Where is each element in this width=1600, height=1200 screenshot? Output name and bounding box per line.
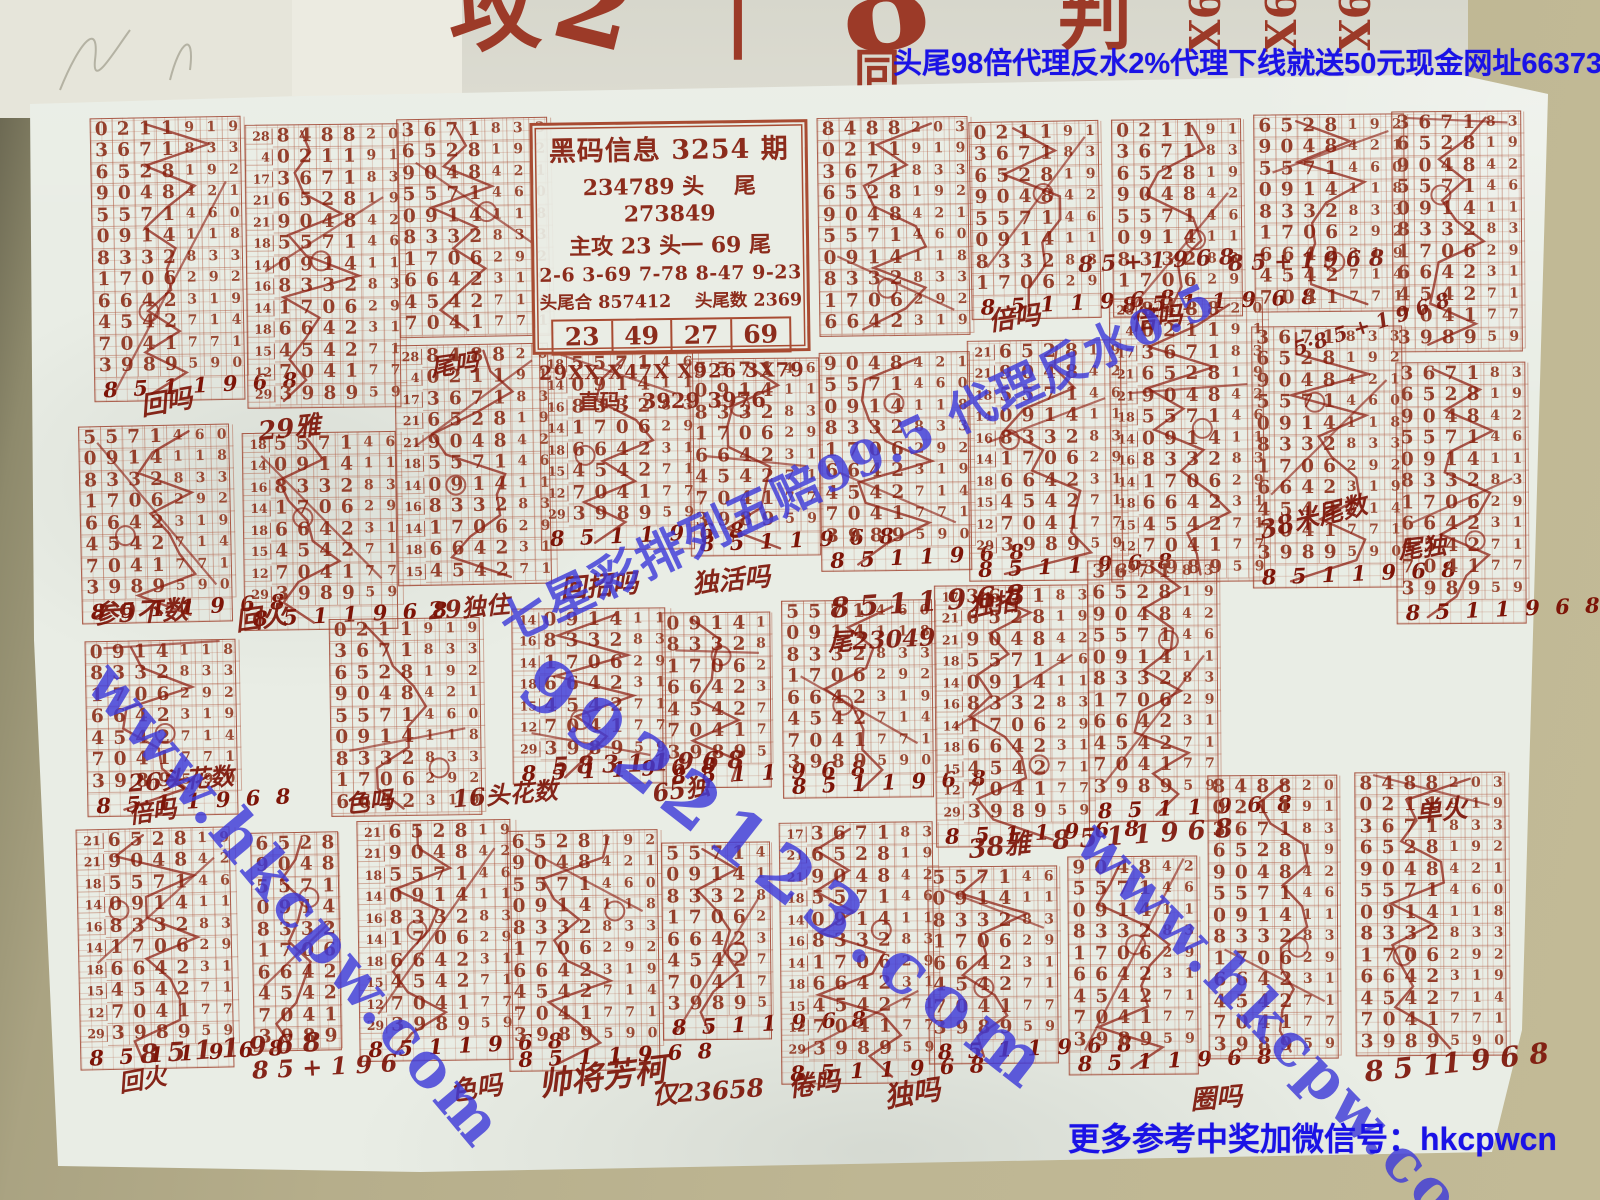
digit-cell: 3 [509, 225, 531, 248]
handwritten-note: 独招 [966, 582, 1021, 625]
digit-cell: 4 [568, 460, 590, 483]
digit-cell: 2 [397, 747, 419, 770]
digit-cell: 4 [1113, 1007, 1135, 1030]
draw-row: 5571460 [508, 873, 657, 896]
count-label: 4 [395, 370, 422, 386]
digit-cell: 8 [361, 167, 383, 190]
draw-row: 8332833 [331, 747, 480, 771]
digit-cell: 7 [510, 311, 532, 334]
digit-cell: 8 [273, 125, 295, 148]
draw-block: 3671833652819290484215571460091411883328… [396, 117, 551, 339]
handwritten-note: 色吗 [343, 780, 394, 820]
digit-cell: 0 [1276, 136, 1298, 159]
count-label: 14 [358, 889, 385, 905]
digit-cell: 7 [1356, 1009, 1378, 1032]
count-label: 15 [244, 544, 271, 560]
digit-cell: 1 [1039, 973, 1061, 996]
digit-cell: 5 [424, 452, 446, 475]
digit-cell: 5 [126, 872, 148, 895]
digit-cell: 4 [1113, 964, 1135, 987]
digit-cell: 4 [444, 291, 466, 314]
digit-cell: 9 [686, 993, 708, 1016]
digit-cell: 3 [1253, 926, 1275, 949]
digit-cell: 3 [91, 140, 113, 163]
digit-cell: 0 [407, 842, 429, 865]
digit-cell: 8 [419, 747, 441, 770]
count-label: 18 [781, 977, 808, 993]
digit-cell: 7 [363, 339, 385, 362]
digit-cell: 6 [508, 831, 530, 854]
info-cell: 49 [613, 320, 673, 353]
digit-cell: 7 [1039, 995, 1061, 1018]
promo-banner-top: 头尾98倍代理反水2%代理下线就送50元现金网址66373.com [893, 40, 1600, 82]
digit-cell: 1 [1480, 133, 1502, 156]
digit-cell: 9 [1039, 930, 1061, 953]
digit-cell: 3 [1488, 923, 1510, 946]
digit-cell: 1 [1458, 111, 1480, 134]
digit-cell: 1 [750, 612, 772, 635]
digit-cell: 9 [532, 1024, 554, 1047]
digit-cell: 2 [513, 515, 535, 538]
digit-cell: 3 [1318, 818, 1340, 841]
digit-cell: 1 [1035, 121, 1057, 144]
digit-cell: 3 [1091, 921, 1113, 944]
digit-cell: 1 [1253, 456, 1275, 479]
digit-cell: 8 [1320, 136, 1342, 159]
digit-cell: 0 [274, 254, 296, 277]
digit-cell: 6 [886, 289, 908, 312]
digit-cell: 9 [962, 629, 984, 652]
digit-cell: 1 [972, 273, 994, 296]
digit-cell: 7 [359, 561, 381, 584]
draw-row: 557146 [1397, 427, 1525, 449]
digit-cell: 6 [1029, 714, 1051, 737]
digit-cell: 2 [862, 182, 884, 205]
digit-cell: 4 [994, 888, 1016, 911]
digit-cell: 7 [685, 656, 707, 679]
digit-cell: 6 [1069, 964, 1091, 987]
digit-cell: 3 [1396, 363, 1418, 386]
digit-cell: 7 [1507, 556, 1529, 579]
digit-cell: 2 [374, 662, 396, 685]
digit-cell: 9 [684, 864, 706, 887]
digit-cell: 4 [1422, 901, 1444, 924]
draw-row: 14170629 [244, 496, 396, 520]
digit-cell: 9 [684, 613, 706, 636]
digit-cell: 2 [428, 820, 450, 843]
digit-cell: 0 [270, 454, 292, 477]
digit-cell: 8 [396, 661, 418, 684]
digit-cell: 7 [1227, 513, 1249, 536]
digit-cell: 3 [583, 630, 605, 653]
digit-cell: 4 [180, 181, 202, 204]
digit-cell: 0 [1419, 406, 1441, 429]
digit-cell: 9 [101, 448, 123, 471]
digit-cell: 7 [1157, 985, 1179, 1008]
digit-cell: 6 [1356, 966, 1378, 989]
digit-cell: 1 [1319, 969, 1341, 992]
digit-cell: 9 [1378, 902, 1400, 925]
draw-row: 557146 [1113, 205, 1241, 228]
count-label: 14 [398, 521, 425, 537]
draw-row: 17062 [663, 656, 770, 678]
digit-cell: 7 [1366, 286, 1388, 309]
digit-cell: 2 [1135, 964, 1157, 987]
digit-cell: 3 [842, 268, 864, 291]
digit-cell: 8 [1397, 470, 1419, 493]
digit-cell: 7 [1111, 690, 1133, 713]
digit-cell: 1 [197, 704, 219, 727]
digit-cell: 4 [340, 253, 362, 276]
digit-cell: 9 [361, 145, 383, 168]
digit-cell: 4 [1481, 176, 1503, 199]
digit-cell: 4 [1300, 287, 1322, 310]
handwritten-row: 8 5 1 1 9 6 8 [1253, 560, 1403, 588]
digit-cell: 8 [1176, 560, 1198, 583]
digit-cell: 2 [337, 539, 359, 562]
digit-cell: 9 [1113, 184, 1135, 207]
digit-cell: 2 [1038, 250, 1060, 273]
digit-cell: 0 [1160, 385, 1182, 408]
digit-cell: 1 [314, 454, 336, 477]
digit-cell: 0 [782, 623, 804, 646]
digit-cell: 2 [352, 619, 374, 642]
draw-row: 0914118 [331, 725, 480, 749]
digit-cell: 4 [138, 333, 160, 356]
count-label: 12 [970, 516, 997, 532]
digit-cell: 2 [729, 677, 751, 700]
digit-cell: 5 [363, 382, 385, 405]
digit-cell: 3 [488, 268, 510, 291]
digit-cell: 2 [171, 914, 193, 937]
digit-cell: 0 [1441, 491, 1463, 514]
digit-cell: 7 [751, 971, 773, 994]
draw-row: 5571460 [331, 704, 480, 728]
digit-cell: 4 [707, 720, 729, 743]
draw-row: 367183 [1088, 561, 1216, 583]
draw-row: 14170629 [247, 296, 399, 319]
digit-cell: 1 [1199, 711, 1221, 734]
draw-row: 14091411 [247, 253, 399, 276]
digit-cell: 0 [1318, 775, 1340, 798]
digit-cell: 8 [817, 118, 839, 141]
digit-cell: 1 [930, 310, 952, 333]
digit-cell: 8 [509, 917, 531, 940]
draw-row: 9048421 [820, 352, 969, 375]
draw-row: 21652819 [357, 820, 509, 844]
digit-cell: 9 [353, 726, 375, 749]
digit-cell: 4 [1444, 880, 1466, 903]
digit-cell: 3 [1415, 219, 1437, 242]
digit-cell: 5 [1111, 733, 1133, 756]
count-label: 16 [936, 697, 963, 713]
digit-cell: 4 [1157, 184, 1179, 207]
digit-cell: 2 [160, 289, 182, 312]
digit-cell: 1 [1462, 362, 1484, 385]
digit-cell: 1 [1007, 671, 1029, 694]
digit-cell: 9 [341, 382, 363, 405]
digit-cell: 0 [969, 122, 991, 145]
digit-cell: 7 [1085, 512, 1107, 535]
digit-cell: 1 [1059, 228, 1081, 251]
draw-row: 14170629 [969, 448, 1121, 471]
digit-cell: 7 [1199, 754, 1221, 777]
handwritten-note: 38雅 [966, 823, 1032, 866]
digit-cell: 2 [146, 468, 168, 491]
digit-cell: 4 [315, 561, 337, 584]
draw-row: 14091411 [936, 671, 1088, 694]
count-label: 12 [248, 365, 275, 381]
digit-cell: 1 [464, 183, 486, 206]
info-number-cells: 23 49 27 69 [551, 316, 791, 355]
digit-cell: 6 [568, 439, 590, 462]
digit-cell: 0 [820, 396, 842, 419]
digit-cell: 5 [1091, 986, 1113, 1009]
digit-cell: 3 [1177, 711, 1199, 734]
digit-cell: 5 [662, 843, 684, 866]
digit-cell: 2 [552, 831, 574, 854]
digit-cell: 7 [1157, 1007, 1179, 1030]
count-label: 15 [969, 495, 996, 511]
digit-cell: 3 [420, 790, 442, 813]
digit-cell: 4 [1485, 427, 1507, 450]
digit-cell: 4 [138, 311, 160, 334]
draw-block: 6528192904842155714600914118833283317062… [1253, 113, 1406, 312]
digit-cell: 1 [1205, 535, 1227, 558]
draw-row: 4021191 [246, 146, 398, 169]
digit-cell: 8 [1204, 384, 1226, 407]
digit-cell: 9 [423, 431, 445, 454]
digit-cell: 4 [1298, 136, 1320, 159]
digit-cell: 3 [1133, 668, 1155, 691]
digit-cell: 4 [1400, 1009, 1422, 1032]
draw-row: 12704177 [248, 361, 400, 384]
digit-cell: 3 [314, 475, 336, 498]
digit-cell: 9 [114, 226, 136, 249]
digit-cell: 5 [1159, 363, 1181, 386]
digit-cell: 2 [1422, 987, 1444, 1010]
digit-cell: 4 [827, 730, 849, 753]
digit-cell: 6 [729, 907, 751, 930]
digit-cell: 5 [398, 184, 420, 207]
digit-cell: 9 [179, 117, 201, 140]
digit-cell: 3 [1088, 561, 1110, 584]
digit-cell: 1 [1400, 902, 1422, 925]
info-box: 黑码信息 3254 期 234789 头 尾 273849 主攻 23 头一 6… [529, 119, 810, 355]
digit-cell: 1 [619, 980, 641, 1003]
digit-cell: 1 [274, 297, 296, 320]
digit-cell: 0 [1278, 287, 1300, 310]
digit-cell: 2 [575, 959, 597, 982]
count-label: 14 [781, 955, 808, 971]
digit-cell: 4 [1113, 985, 1135, 1008]
digit-cell: 2 [1488, 944, 1510, 967]
digit-cell: 4 [907, 203, 929, 226]
digit-cell: 9 [1198, 582, 1220, 605]
digit-cell: 3 [1226, 491, 1248, 514]
draw-row: 398959 [1394, 327, 1522, 349]
digit-cell: 8 [906, 160, 928, 183]
digit-cell: 3 [507, 118, 529, 141]
digit-cell: 0 [211, 424, 233, 447]
digit-cell: 3 [212, 467, 234, 490]
digit-cell: 1 [358, 453, 380, 476]
draw-row: 8332833 [1356, 923, 1505, 945]
count-label: 15 [248, 343, 275, 359]
digit-cell: 8 [873, 844, 895, 867]
count-label: 12 [80, 1005, 107, 1022]
digit-cell: 6 [842, 311, 864, 334]
digit-cell: 1 [451, 863, 473, 886]
count-label: 14 [244, 501, 271, 517]
digit-cell: 2 [908, 289, 930, 312]
digit-cell: 1 [972, 888, 994, 911]
digit-cell: 2 [1084, 447, 1106, 470]
digit-cell: 4 [1182, 384, 1204, 407]
digit-cell: 1 [1038, 887, 1060, 910]
digit-cell: 1 [1069, 943, 1091, 966]
digit-cell: 7 [620, 1002, 642, 1025]
digit-cell: 5 [331, 705, 353, 728]
digit-cell: 1 [339, 146, 361, 169]
draw-row: 3671833 [818, 160, 967, 184]
digit-cell: 4 [150, 957, 172, 980]
digit-cell: 7 [374, 640, 396, 663]
info-pairs-line: 2-6 3-69 7-78 8-47 9-23 [534, 261, 806, 287]
digit-cell: 8 [640, 894, 662, 917]
digit-cell: 3 [928, 160, 950, 183]
digit-cell: 1 [1203, 341, 1225, 364]
draw-row: 15454271 [541, 460, 693, 483]
digit-cell: 2 [1198, 603, 1220, 626]
draw-row: 18557146 [358, 863, 510, 887]
digit-cell: 0 [422, 313, 444, 336]
photo-of-lottery-chart: 8攻2丨同判9X9X9X 021191936718336528192904842… [0, 0, 1600, 1200]
digit-cell: 6 [929, 224, 951, 247]
digit-cell: 1 [820, 290, 842, 313]
digit-cell: 7 [442, 183, 464, 206]
draw-block: 0211919367183365281929048421557146009141… [90, 116, 246, 402]
digit-cell: 4 [1139, 514, 1161, 537]
digit-cell: 6 [808, 973, 830, 996]
digit-cell: 1 [510, 268, 532, 291]
digit-cell: 2 [1362, 369, 1384, 392]
digit-cell: 0 [831, 1016, 853, 1039]
digit-cell: 2 [1436, 133, 1458, 156]
digit-cell: 3 [124, 469, 146, 492]
digit-cell: 4 [1275, 904, 1297, 927]
digit-cell: 9 [1379, 1031, 1401, 1054]
digit-cell: 4 [612, 438, 634, 461]
digit-cell: 8 [1178, 162, 1200, 185]
digit-cell: 8 [397, 683, 419, 706]
digit-cell: 4 [691, 466, 713, 489]
digit-cell: 3 [951, 910, 973, 933]
digit-cell: 3 [1160, 449, 1182, 472]
digit-cell: 3 [223, 138, 245, 161]
digit-cell: 8 [105, 915, 127, 938]
digit-cell: 7 [182, 310, 204, 333]
digit-cell: 8 [418, 640, 440, 663]
draw-row: 17062 [663, 907, 770, 930]
digit-cell: 9 [1138, 385, 1160, 408]
digit-cell: 1 [1179, 205, 1201, 228]
digit-cell: 2 [575, 981, 597, 1004]
draw-row: 14091411 [1111, 427, 1263, 450]
digit-cell: 7 [1378, 945, 1400, 968]
info-title: 黑码信息 3254 期 [532, 126, 805, 169]
digit-cell: 7 [994, 272, 1016, 295]
digit-cell: 4 [596, 852, 618, 875]
digit-cell: 8 [450, 820, 472, 843]
digit-cell: 2 [1463, 470, 1485, 493]
count-label: 18 [935, 654, 962, 670]
digit-cell: 2 [465, 226, 487, 249]
draw-row: 904842 [1209, 862, 1337, 884]
digit-cell: 3 [513, 537, 535, 560]
digit-cell: 4 [1132, 603, 1154, 626]
digit-cell: 3 [215, 913, 237, 936]
digit-cell: 1 [1133, 646, 1155, 669]
digit-cell: 0 [150, 936, 172, 959]
count-label: 16 [398, 499, 425, 515]
draw-row: 9048421 [1252, 369, 1401, 392]
draw-row: 652819 [1396, 384, 1524, 406]
digit-cell: 7 [1253, 883, 1275, 906]
draw-row: 16833283 [247, 275, 399, 298]
digit-cell: 6 [575, 938, 597, 961]
digit-cell: 6 [963, 736, 985, 759]
digit-cell: 4 [552, 852, 574, 875]
digit-cell: 3 [1252, 327, 1274, 350]
digit-cell: 4 [574, 895, 596, 918]
digit-cell: 4 [509, 982, 531, 1005]
digit-cell: 6 [447, 538, 469, 561]
digit-cell: 6 [663, 677, 685, 700]
digit-cell: 6 [818, 183, 840, 206]
draw-block: 1736718321652819219048421855714614091411… [934, 584, 1090, 847]
digit-cell: 9 [1502, 133, 1524, 156]
digit-cell: 3 [510, 1025, 532, 1048]
digit-cell: 4 [1296, 370, 1318, 393]
digit-cell: 4 [1029, 671, 1051, 694]
digit-cell: 5 [1138, 406, 1160, 429]
digit-cell: 3 [628, 672, 650, 695]
count-label: 12 [541, 485, 568, 501]
digit-cell: 2 [223, 159, 245, 182]
digit-cell: 4 [707, 677, 729, 700]
digit-cell: 7 [783, 730, 805, 753]
digit-cell: 6 [1275, 477, 1297, 500]
draw-row: 7041771 [1256, 286, 1405, 309]
digit-cell: 1 [202, 224, 224, 247]
draw-row: 557146 [1393, 176, 1521, 198]
digit-cell: 1 [468, 473, 490, 496]
digit-cell: 8 [317, 124, 339, 147]
digit-cell: 7 [1018, 448, 1040, 471]
digit-cell: 8 [1274, 775, 1296, 798]
digit-cell: 4 [866, 503, 888, 526]
digit-cell: 3 [296, 275, 318, 298]
digit-cell: 8 [1069, 921, 1091, 944]
digit-cell: 0 [842, 353, 864, 376]
digit-cell: 3 [1084, 469, 1106, 492]
digit-cell: 9 [421, 205, 443, 228]
count-label: 14 [247, 300, 274, 316]
digit-cell: 4 [1230, 776, 1252, 799]
digit-cell: 4 [1253, 861, 1275, 884]
digit-cell: 1 [1138, 471, 1160, 494]
